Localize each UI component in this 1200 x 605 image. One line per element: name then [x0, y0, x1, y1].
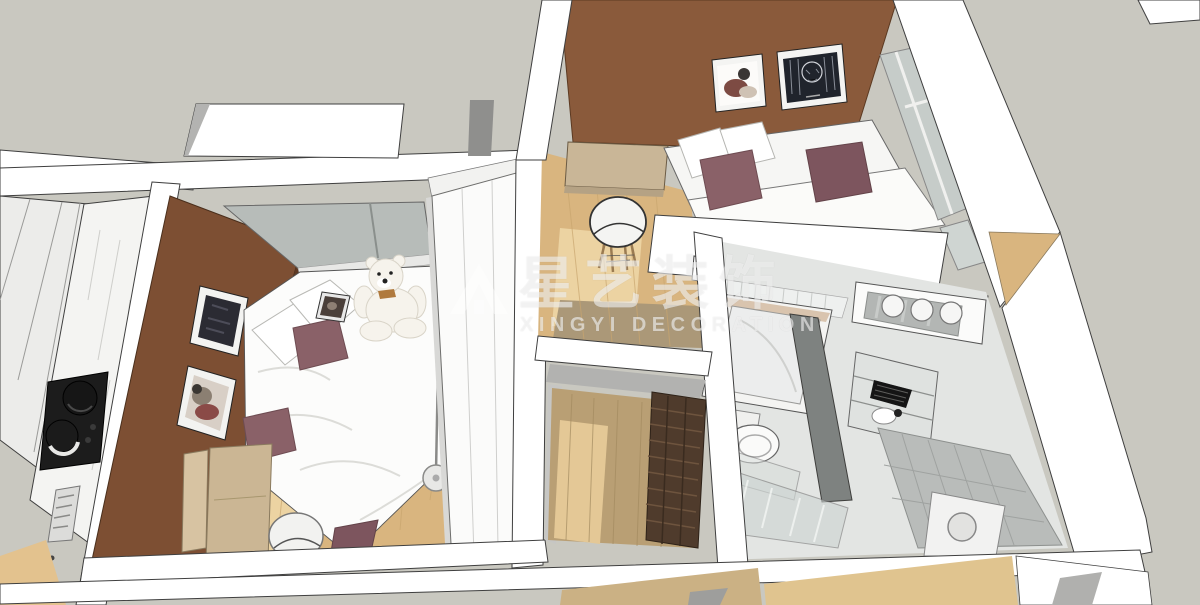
tablet-on-bed — [316, 292, 350, 322]
teddy-head — [369, 259, 403, 293]
chair-shell — [590, 197, 646, 247]
teddy-nose — [383, 279, 388, 284]
cooktop-knob-2 — [85, 437, 91, 443]
wall-top-trapezoid — [184, 104, 404, 158]
teddy-eye-left — [377, 272, 381, 276]
hall-floor-light — [554, 420, 608, 544]
teddy-eye-right — [389, 271, 393, 275]
apartment-render: 星艺装饰 XINGYI DECORATION — [0, 0, 1200, 605]
shoe-shelf — [646, 392, 706, 548]
sofa-mauve-pillow-2 — [806, 142, 872, 202]
pot-rear — [63, 381, 97, 415]
living-art-portrait — [777, 44, 847, 110]
gas-cooktop — [40, 372, 108, 470]
basin-1 — [882, 295, 904, 317]
teddy-leg-right — [394, 318, 426, 338]
bedroom-art-dark — [190, 286, 248, 356]
bedroom-dresser — [182, 444, 272, 562]
basin-3 — [940, 302, 962, 324]
teddy-leg-left — [360, 321, 392, 341]
white-basin — [872, 408, 896, 424]
living-art-figure — [712, 54, 766, 112]
cooktop-knob-1 — [90, 424, 96, 430]
basin-2 — [911, 299, 933, 321]
wall-gray-patch — [468, 100, 494, 156]
living-desk — [564, 142, 668, 197]
